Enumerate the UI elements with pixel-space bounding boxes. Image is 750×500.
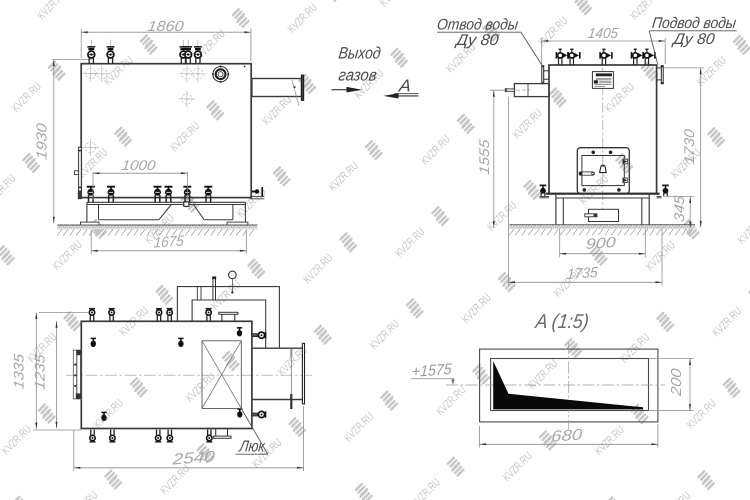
svg-text:1405: 1405: [587, 26, 620, 42]
svg-text:KVZR.RU: KVZR.RU: [36, 0, 70, 22]
svg-text:KVZR.RU: KVZR.RU: [302, 252, 336, 286]
svg-text:2540: 2540: [171, 448, 215, 468]
svg-text:газов: газов: [338, 66, 379, 85]
svg-text:KVZR.RU: KVZR.RU: [695, 55, 729, 89]
svg-text:KVZR.RU: KVZR.RU: [0, 173, 18, 207]
svg-text:KVZR.RU: KVZR.RU: [435, 384, 469, 418]
svg-text:KVZR.RU: KVZR.RU: [184, 371, 218, 405]
svg-text:KVZR.RU: KVZR.RU: [343, 411, 377, 445]
svg-text:KVZR.RU: KVZR.RU: [51, 239, 85, 273]
svg-text:1675: 1675: [153, 233, 185, 251]
svg-text:KVZR.RU: KVZR.RU: [460, 292, 494, 326]
svg-text:KVZR.RU: KVZR.RU: [210, 279, 244, 313]
svg-text:1860: 1860: [147, 19, 185, 35]
svg-text:Люк: Люк: [238, 437, 267, 455]
svg-text:KVZR.RU: KVZR.RU: [593, 424, 627, 458]
svg-text:1735: 1735: [566, 265, 599, 283]
svg-text:1000: 1000: [121, 157, 157, 173]
svg-text:+1575: +1575: [411, 361, 452, 381]
svg-text:KVZR.RU: KVZR.RU: [409, 477, 443, 500]
svg-text:345: 345: [671, 195, 687, 223]
svg-text:KVZR.RU: KVZR.RU: [711, 305, 745, 339]
svg-text:KVZR.RU: KVZR.RU: [644, 239, 678, 273]
svg-text:200: 200: [669, 368, 685, 398]
svg-text:KVZR.RU: KVZR.RU: [660, 490, 694, 500]
svg-text:KVZR.RU: KVZR.RU: [501, 450, 535, 484]
svg-text:KVZR.RU: KVZR.RU: [0, 423, 34, 457]
svg-text:KVZR.RU: KVZR.RU: [419, 134, 453, 168]
svg-text:KVZR.RU: KVZR.RU: [378, 0, 412, 9]
svg-text:KVZR.RU: KVZR.RU: [10, 81, 44, 115]
svg-text:A: A: [397, 76, 412, 96]
svg-text:1730: 1730: [681, 128, 697, 165]
svg-text:KVZR.RU: KVZR.RU: [67, 489, 101, 500]
svg-text:1235: 1235: [32, 353, 48, 390]
svg-text:Ду 80: Ду 80: [670, 31, 715, 48]
svg-text:KVZR.RU: KVZR.RU: [327, 160, 361, 194]
svg-text:Ду 80: Ду 80: [453, 32, 500, 49]
svg-text:1555: 1555: [476, 138, 492, 175]
svg-text:KVZR.RU: KVZR.RU: [394, 226, 428, 260]
svg-text:A (1:5): A (1:5): [533, 311, 590, 333]
svg-text:900: 900: [585, 235, 616, 253]
svg-text:KVZR.RU: KVZR.RU: [286, 2, 320, 36]
svg-text:KVZR.RU: KVZR.RU: [169, 120, 203, 154]
svg-text:1335: 1335: [11, 353, 27, 390]
svg-text:KVZR.RU: KVZR.RU: [736, 213, 750, 247]
svg-text:Выход: Выход: [338, 44, 382, 63]
svg-text:KVZR.RU: KVZR.RU: [261, 94, 295, 128]
svg-text:KVZR.RU: KVZR.RU: [92, 397, 126, 431]
svg-text:KVZR.RU: KVZR.RU: [368, 318, 402, 352]
svg-text:KVZR.RU: KVZR.RU: [102, 54, 136, 88]
svg-text:1930: 1930: [35, 123, 51, 161]
svg-text:Подвод воды: Подвод воды: [651, 15, 738, 32]
svg-text:KVZR.RU: KVZR.RU: [511, 107, 545, 141]
svg-text:680: 680: [551, 426, 583, 445]
svg-text:KVZR.RU: KVZR.RU: [527, 358, 561, 392]
